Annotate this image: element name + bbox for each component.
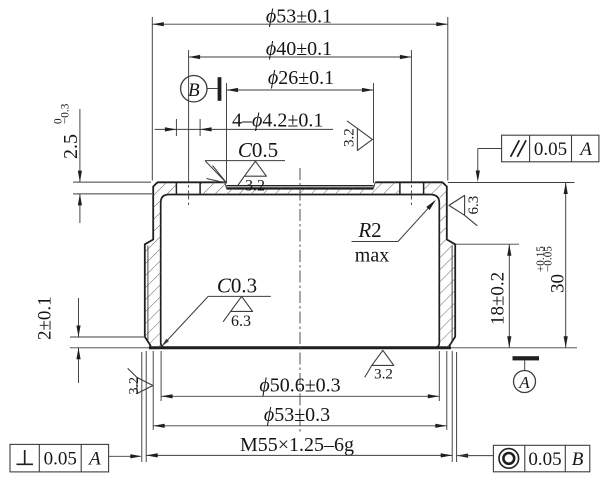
- svg-text:6.3: 6.3: [231, 313, 251, 330]
- svg-text:max: max: [355, 245, 389, 267]
- svg-text:ϕ40±0.1: ϕ40±0.1: [266, 38, 332, 60]
- svg-text:ϕ26±0.1: ϕ26±0.1: [268, 67, 334, 89]
- svg-text:2.5: 2.5: [60, 134, 82, 159]
- svg-text:−0.3: −0.3: [60, 103, 72, 124]
- svg-text:2±0.1: 2±0.1: [35, 296, 56, 340]
- svg-text:C0.5: C0.5: [238, 138, 278, 162]
- svg-text:A: A: [578, 139, 592, 160]
- svg-text:R2: R2: [357, 218, 381, 242]
- svg-text:C0.3: C0.3: [217, 274, 257, 298]
- svg-text:6.3: 6.3: [466, 196, 482, 215]
- svg-text:3.2: 3.2: [342, 128, 358, 147]
- svg-text:A: A: [87, 448, 101, 469]
- svg-text:18±0.2: 18±0.2: [488, 272, 509, 325]
- svg-text:B: B: [572, 449, 584, 470]
- svg-text:3.2: 3.2: [245, 178, 265, 195]
- svg-text:3.2: 3.2: [127, 377, 142, 395]
- svg-text:4–ϕ4.2±0.1: 4–ϕ4.2±0.1: [232, 110, 323, 132]
- svg-text:3.2: 3.2: [374, 367, 393, 383]
- svg-text:0.05: 0.05: [534, 139, 567, 160]
- svg-text:−0.05: −0.05: [543, 246, 555, 272]
- svg-text:M55×1.25–6g: M55×1.25–6g: [240, 434, 354, 456]
- svg-text:ϕ53±0.3: ϕ53±0.3: [264, 404, 330, 426]
- svg-text:ϕ53±0.1: ϕ53±0.1: [266, 5, 332, 27]
- svg-text:0.05: 0.05: [44, 448, 77, 469]
- svg-text:B: B: [188, 80, 200, 101]
- svg-text:A: A: [518, 373, 530, 392]
- svg-text:0.05: 0.05: [528, 449, 561, 470]
- svg-text:30: 30: [548, 274, 569, 293]
- svg-text:ϕ50.6±0.3: ϕ50.6±0.3: [259, 375, 340, 397]
